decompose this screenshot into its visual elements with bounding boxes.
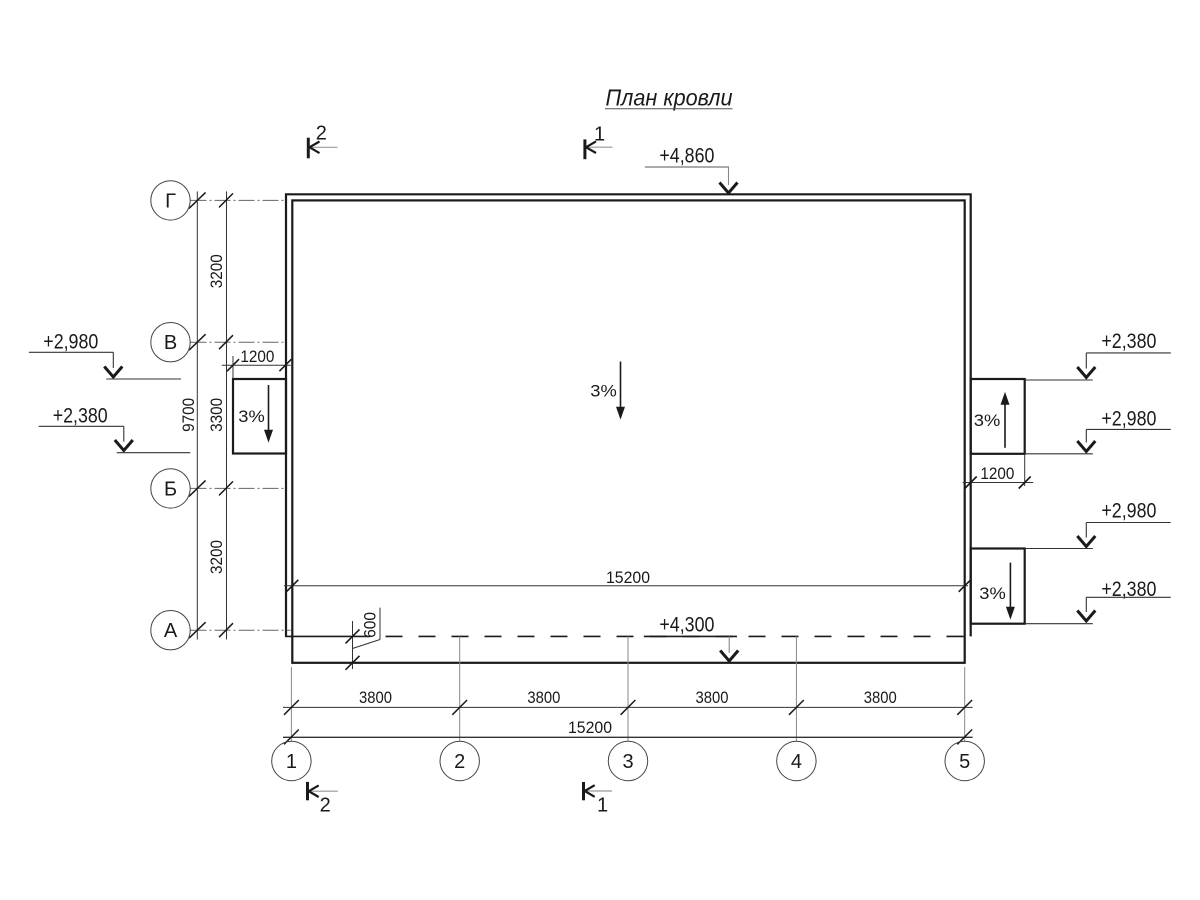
svg-text:1: 1: [597, 794, 608, 816]
svg-text:+2,980: +2,980: [1101, 500, 1156, 523]
svg-text:План кровли: План кровли: [606, 85, 733, 111]
svg-text:600: 600: [362, 612, 380, 638]
svg-text:1200: 1200: [240, 348, 274, 366]
svg-text:+2,980: +2,980: [43, 330, 98, 353]
svg-text:3: 3: [622, 751, 633, 773]
svg-text:+2,980: +2,980: [1101, 408, 1156, 431]
svg-text:3800: 3800: [696, 689, 729, 707]
svg-text:5: 5: [959, 751, 970, 773]
svg-text:3%: 3%: [590, 382, 617, 401]
svg-text:3300: 3300: [208, 398, 226, 432]
svg-text:15200: 15200: [568, 719, 612, 737]
svg-text:1: 1: [286, 751, 297, 773]
svg-text:1: 1: [594, 123, 605, 145]
svg-text:2: 2: [316, 122, 327, 144]
svg-text:+2,380: +2,380: [1101, 330, 1156, 353]
svg-text:А: А: [164, 620, 178, 642]
svg-text:3%: 3%: [238, 407, 265, 426]
svg-text:+4,860: +4,860: [659, 144, 714, 167]
svg-text:3200: 3200: [208, 254, 226, 288]
svg-text:Б: Б: [164, 478, 177, 500]
svg-text:+2,380: +2,380: [53, 405, 108, 428]
svg-text:В: В: [164, 332, 177, 354]
svg-text:2: 2: [454, 751, 465, 773]
svg-text:3%: 3%: [974, 411, 1001, 430]
svg-text:3200: 3200: [208, 540, 226, 574]
svg-text:3800: 3800: [359, 689, 392, 707]
svg-text:Г: Г: [165, 190, 176, 212]
svg-text:3%: 3%: [979, 584, 1006, 603]
svg-text:3800: 3800: [864, 689, 897, 707]
svg-text:4: 4: [791, 751, 802, 773]
svg-text:15200: 15200: [606, 569, 650, 587]
svg-text:+4,300: +4,300: [659, 614, 714, 637]
svg-text:1200: 1200: [980, 465, 1014, 483]
svg-text:2: 2: [320, 795, 331, 817]
svg-text:3800: 3800: [527, 689, 560, 707]
svg-text:9700: 9700: [180, 398, 198, 432]
